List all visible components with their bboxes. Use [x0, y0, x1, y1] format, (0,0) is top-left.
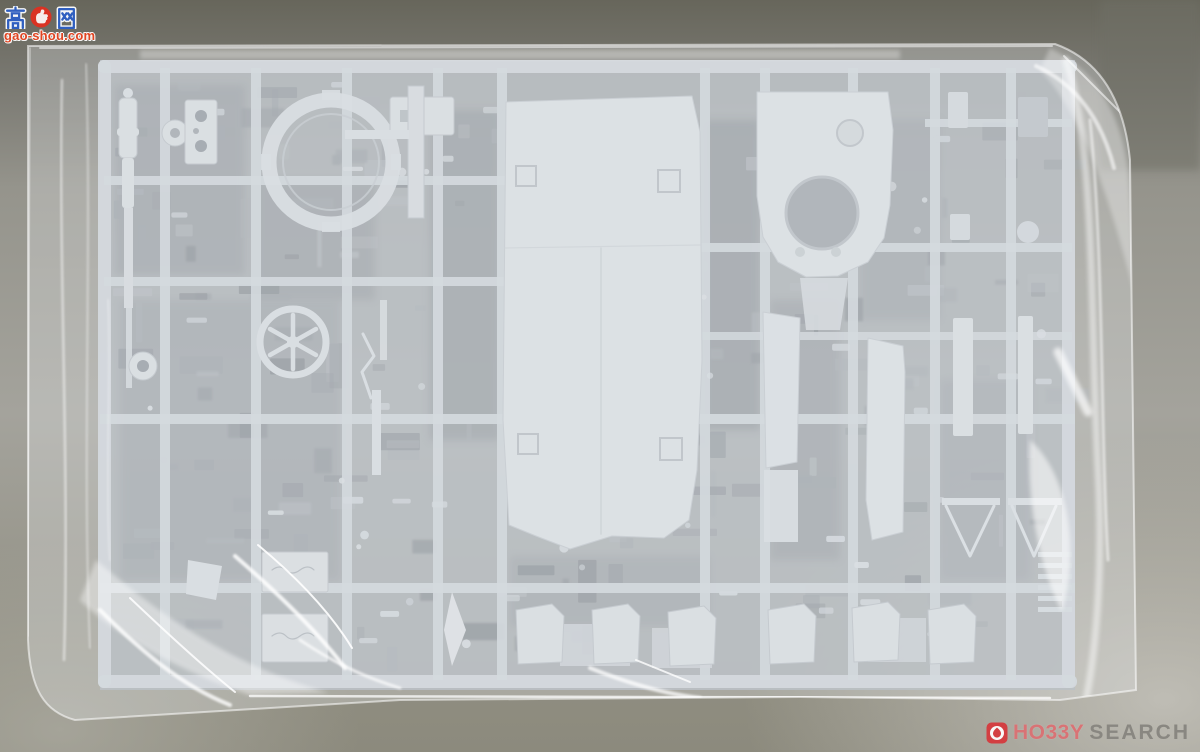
hobby-search-flame-icon	[986, 722, 1008, 744]
watermark-gaoshou-logo	[4, 5, 95, 29]
fist-icon	[29, 5, 53, 29]
watermark-gaoshou: gao-shou.com	[4, 5, 95, 43]
char-wang-glyph	[55, 6, 78, 29]
hobby-search-suffix-text: SEARCH	[1089, 721, 1190, 745]
char-gao-glyph	[4, 6, 27, 29]
hobby-search-brand-text: HO33Y	[1013, 721, 1084, 745]
watermark-gaoshou-domain: gao-shou.com	[4, 28, 95, 43]
scene-svg	[0, 0, 1200, 752]
plastic-bag	[28, 44, 1136, 720]
photo-stage: gao-shou.com HO33Y SEARCH	[0, 0, 1200, 752]
watermark-hobby-search: HO33Y SEARCH	[986, 721, 1190, 745]
bag-surface	[28, 44, 1136, 720]
